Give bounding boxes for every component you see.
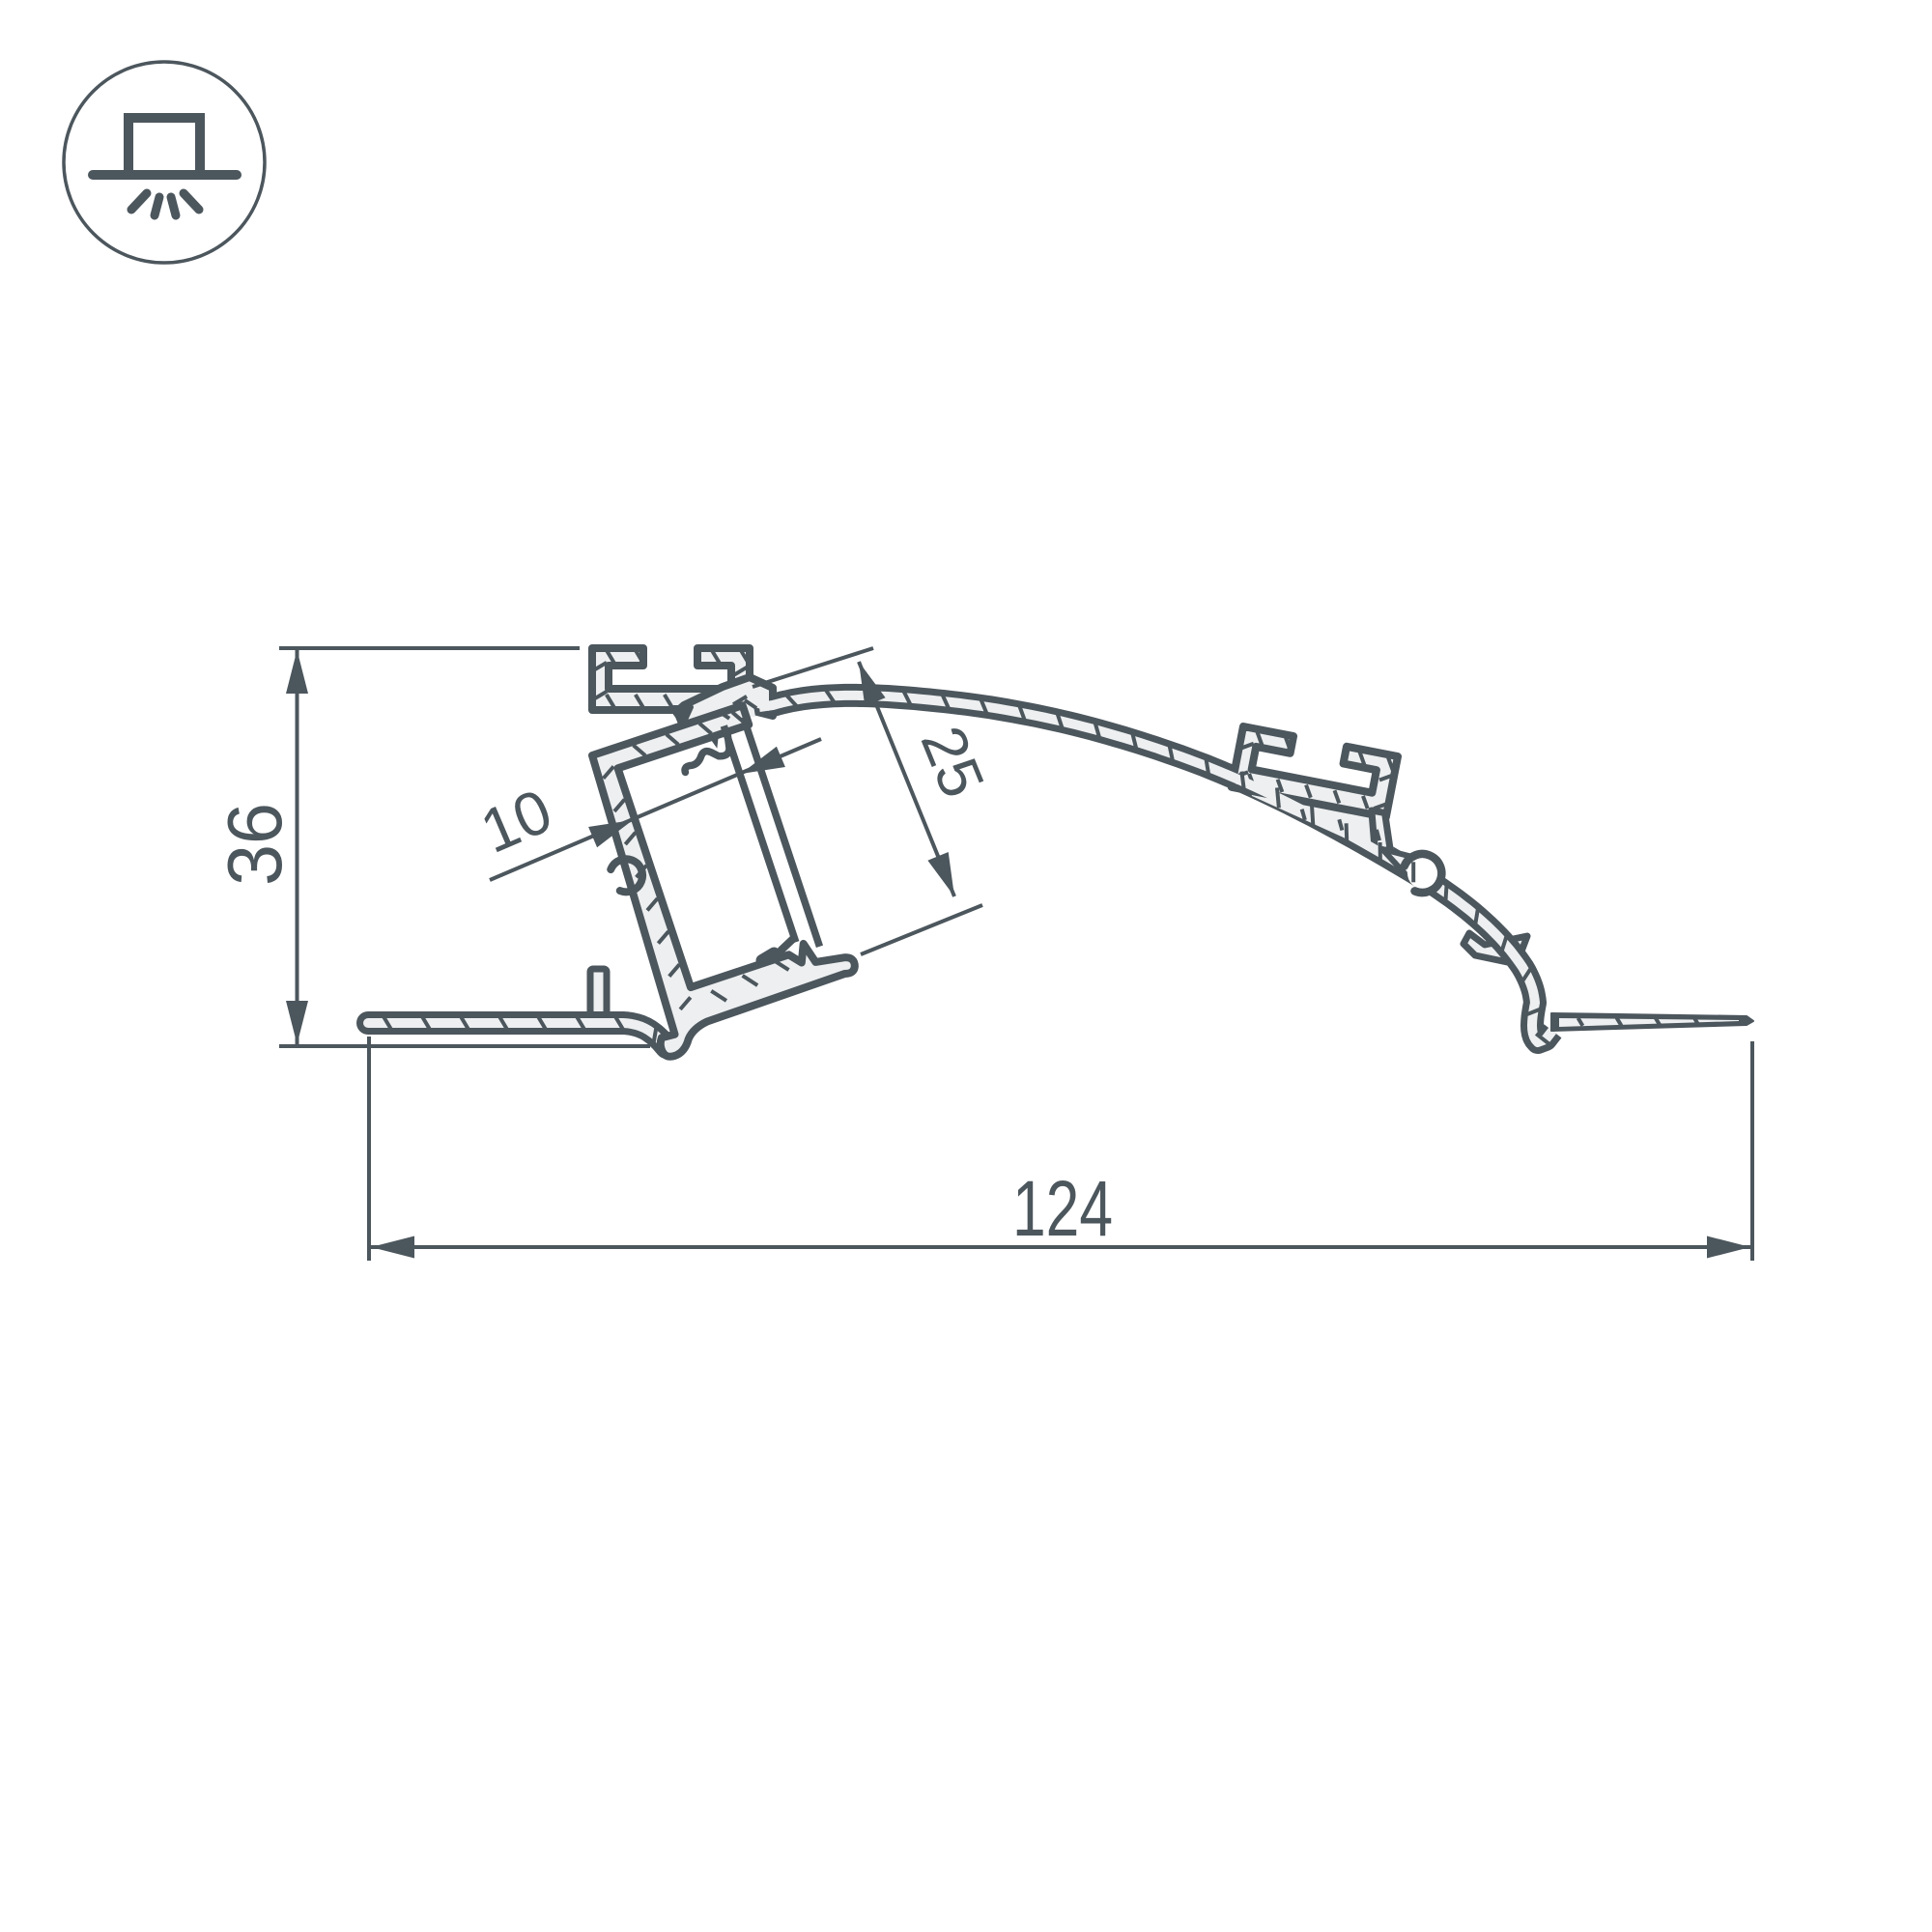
svg-text:124: 124 bbox=[1012, 1165, 1113, 1253]
svg-text:36: 36 bbox=[212, 803, 298, 886]
